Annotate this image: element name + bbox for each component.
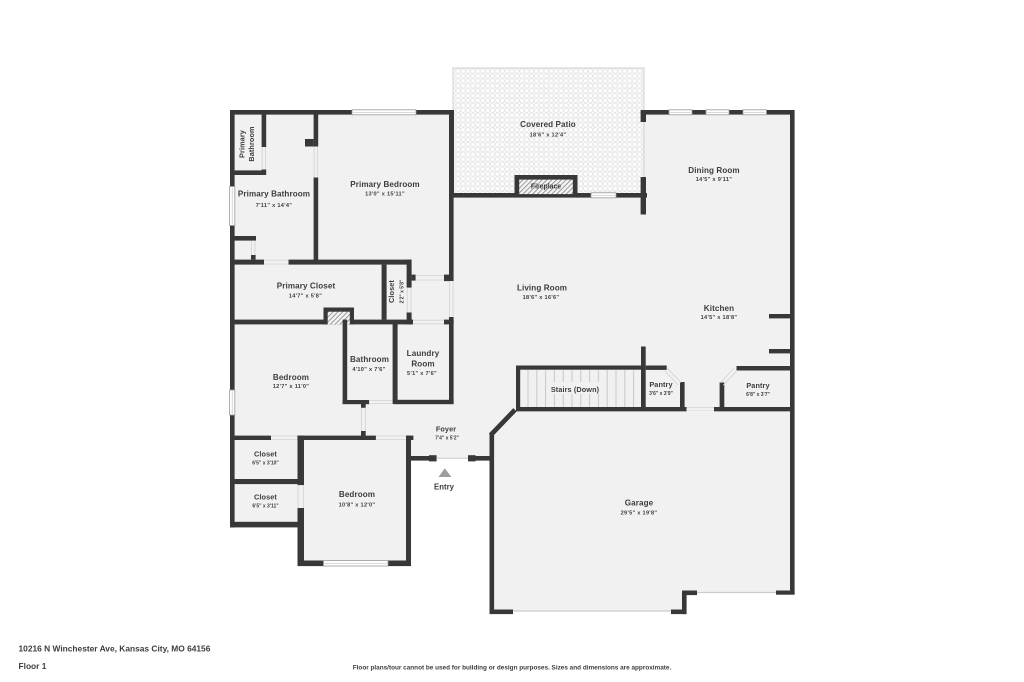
- svg-text:14'5" x 18'8": 14'5" x 18'8": [701, 315, 738, 321]
- svg-text:10216 N Winchester Ave, Kansas: 10216 N Winchester Ave, Kansas City, MO …: [19, 644, 211, 654]
- svg-text:Foyer: Foyer: [436, 425, 456, 434]
- svg-text:10'8" x 12'0": 10'8" x 12'0": [339, 502, 376, 508]
- svg-text:Bathroom: Bathroom: [247, 126, 256, 162]
- svg-text:29'5" x 19'8": 29'5" x 19'8": [621, 511, 658, 517]
- svg-text:2'2" x 5'8": 2'2" x 5'8": [400, 279, 406, 303]
- svg-text:12'7" x 11'0": 12'7" x 11'0": [273, 384, 309, 390]
- svg-text:Dining Room: Dining Room: [688, 166, 739, 175]
- svg-text:Closet: Closet: [254, 493, 277, 502]
- svg-text:14'5" x 9'11": 14'5" x 9'11": [696, 177, 732, 183]
- svg-text:Primary Bathroom: Primary Bathroom: [238, 190, 310, 199]
- svg-text:Closet: Closet: [387, 280, 396, 303]
- svg-text:18'6" x 12'4": 18'6" x 12'4": [530, 133, 567, 139]
- svg-text:3'6" x 3'9": 3'6" x 3'9": [649, 391, 673, 397]
- svg-text:6'5" x 3'11": 6'5" x 3'11": [252, 503, 279, 509]
- svg-text:Pantry: Pantry: [649, 380, 673, 389]
- svg-text:Kitchen: Kitchen: [704, 304, 734, 313]
- svg-text:5'1" x 7'6": 5'1" x 7'6": [407, 371, 437, 377]
- svg-text:6'5" x 3'10": 6'5" x 3'10": [252, 460, 279, 466]
- svg-text:Living Room: Living Room: [517, 284, 567, 293]
- svg-text:Primary: Primary: [238, 129, 247, 158]
- svg-text:Floor 1: Floor 1: [19, 661, 47, 671]
- svg-text:Bedroom: Bedroom: [339, 490, 375, 499]
- svg-text:Primary Bedroom: Primary Bedroom: [350, 180, 419, 189]
- svg-text:Garage: Garage: [625, 499, 654, 508]
- svg-text:Bathroom: Bathroom: [350, 355, 389, 364]
- svg-text:7'11" x 14'4": 7'11" x 14'4": [256, 203, 292, 209]
- svg-text:Fireplace: Fireplace: [531, 183, 561, 190]
- svg-text:4'10" x 7'6": 4'10" x 7'6": [352, 367, 385, 373]
- svg-text:18'6" x 16'6": 18'6" x 16'6": [523, 295, 560, 301]
- svg-text:14'7" x 5'8": 14'7" x 5'8": [289, 294, 322, 300]
- svg-text:13'0" x 15'11": 13'0" x 15'11": [365, 192, 405, 198]
- svg-text:Bedroom: Bedroom: [273, 373, 309, 382]
- svg-text:7'4" x 5'2": 7'4" x 5'2": [435, 436, 459, 442]
- svg-text:Room: Room: [411, 360, 434, 369]
- svg-text:Laundry: Laundry: [407, 349, 440, 358]
- svg-text:Floor plans/tour cannot be use: Floor plans/tour cannot be used for buil…: [353, 665, 672, 672]
- svg-text:Closet: Closet: [254, 450, 277, 459]
- svg-text:Stairs (Down): Stairs (Down): [551, 385, 600, 394]
- svg-text:Entry: Entry: [434, 483, 455, 492]
- svg-text:Primary Closet: Primary Closet: [277, 282, 336, 291]
- svg-text:6'8" x 3'7": 6'8" x 3'7": [746, 392, 770, 398]
- svg-text:Pantry: Pantry: [746, 381, 770, 390]
- svg-text:Covered Patio: Covered Patio: [520, 120, 576, 129]
